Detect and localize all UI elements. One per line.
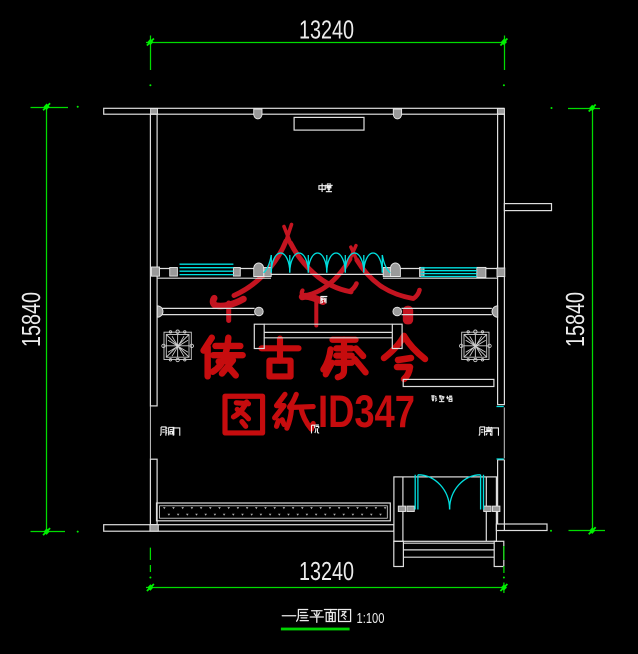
svg-text:13240: 13240 (299, 556, 354, 586)
svg-text:ID347: ID347 (318, 386, 415, 437)
svg-text:15840: 15840 (560, 292, 590, 347)
svg-text:15840: 15840 (16, 292, 46, 347)
svg-text:13240: 13240 (299, 15, 354, 45)
svg-text:1:100: 1:100 (357, 611, 385, 627)
